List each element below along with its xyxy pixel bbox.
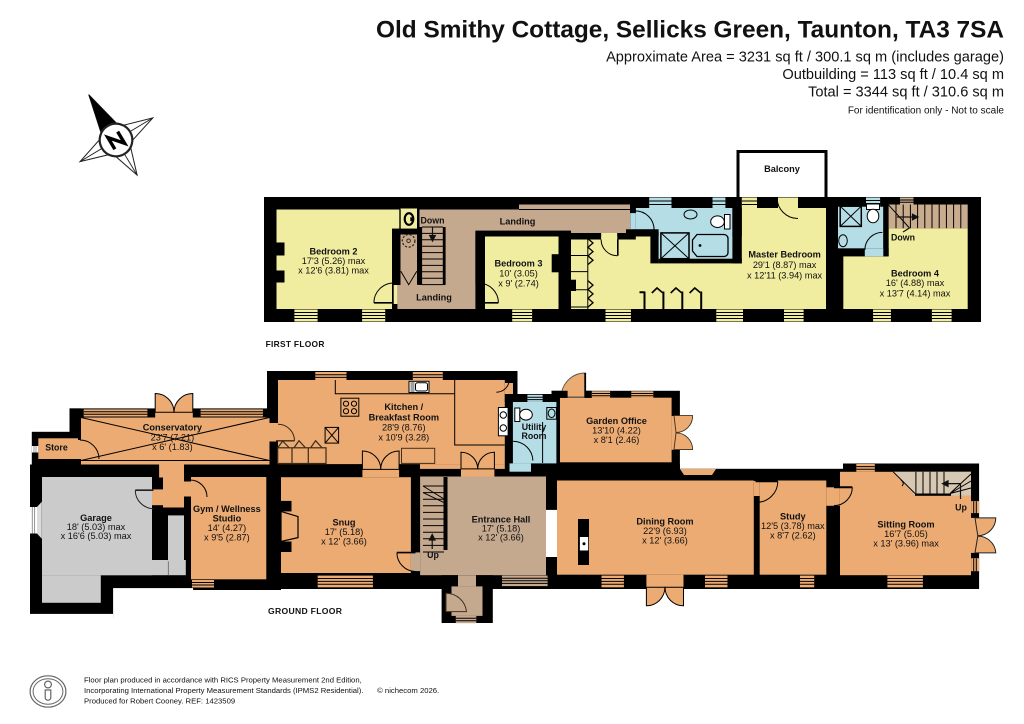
svg-text:Kitchen /: Kitchen / bbox=[384, 402, 423, 412]
svg-text:x 13'7 (4.14) max: x 13'7 (4.14) max bbox=[880, 288, 951, 298]
svg-text:Up: Up bbox=[955, 503, 967, 513]
svg-text:x 13' (3.96) max: x 13' (3.96) max bbox=[873, 539, 939, 549]
svg-text:Balcony: Balcony bbox=[764, 164, 801, 174]
svg-text:Outbuilding = 113 sq ft / 10.4: Outbuilding = 113 sq ft / 10.4 sq m bbox=[782, 67, 1004, 83]
svg-text:16' (4.88) max: 16' (4.88) max bbox=[886, 278, 945, 288]
svg-text:x 12'6 (3.81) max: x 12'6 (3.81) max bbox=[298, 266, 369, 276]
svg-text:Dining Room: Dining Room bbox=[636, 517, 693, 527]
svg-text:12'5 (3.78) max: 12'5 (3.78) max bbox=[761, 521, 825, 531]
svg-text:x 8'1 (2.46): x 8'1 (2.46) bbox=[594, 435, 640, 445]
svg-text:17' (5.18): 17' (5.18) bbox=[325, 527, 364, 537]
svg-text:x 12'11 (3.94) max: x 12'11 (3.94) max bbox=[747, 271, 823, 281]
svg-text:10' (3.05): 10' (3.05) bbox=[499, 268, 538, 278]
svg-text:Studio: Studio bbox=[213, 514, 242, 524]
svg-text:Total = 3344 sq ft / 310.6 sq: Total = 3344 sq ft / 310.6 sq m bbox=[808, 85, 1004, 101]
svg-text:Landing: Landing bbox=[416, 293, 452, 303]
svg-text:x 6' (1.83): x 6' (1.83) bbox=[152, 442, 193, 452]
svg-text:x 16'6 (5.03) max: x 16'6 (5.03) max bbox=[61, 531, 132, 541]
svg-text:x 8'7 (2.62): x 8'7 (2.62) bbox=[770, 531, 816, 541]
svg-text:FIRST FLOOR: FIRST FLOOR bbox=[266, 339, 325, 349]
svg-text:Snug: Snug bbox=[333, 517, 356, 527]
svg-text:Store: Store bbox=[45, 443, 68, 453]
svg-text:16'7 (5.05): 16'7 (5.05) bbox=[884, 529, 928, 539]
svg-text:Bedroom 4: Bedroom 4 bbox=[891, 268, 940, 278]
svg-text:x 9'5 (2.87): x 9'5 (2.87) bbox=[204, 533, 250, 543]
svg-text:17'3 (5.26) max: 17'3 (5.26) max bbox=[302, 256, 366, 266]
svg-text:Breakfast Room: Breakfast Room bbox=[369, 412, 439, 422]
svg-text:28'9 (8.76): 28'9 (8.76) bbox=[382, 423, 426, 433]
svg-text:x 9' (2.74): x 9' (2.74) bbox=[498, 278, 539, 288]
svg-text:x 12' (3.66): x 12' (3.66) bbox=[642, 536, 688, 546]
svg-text:x 10'9 (3.28): x 10'9 (3.28) bbox=[378, 433, 429, 443]
svg-text:Master Bedroom: Master Bedroom bbox=[748, 250, 821, 260]
svg-text:Sitting Room: Sitting Room bbox=[877, 520, 934, 530]
svg-text:x 12' (3.66): x 12' (3.66) bbox=[321, 537, 367, 547]
svg-text:Study: Study bbox=[780, 512, 806, 522]
svg-text:For identification only - Not: For identification only - Not to scale bbox=[848, 106, 1005, 117]
svg-text:Incorporating International Pr: Incorporating International Property Mea… bbox=[84, 686, 439, 695]
svg-text:Landing: Landing bbox=[500, 217, 536, 227]
svg-text:14' (4.27): 14' (4.27) bbox=[208, 523, 247, 533]
svg-text:22'9 (6.93): 22'9 (6.93) bbox=[643, 526, 687, 536]
svg-text:29'1 (8.87) max: 29'1 (8.87) max bbox=[753, 260, 817, 270]
svg-text:Garden Office: Garden Office bbox=[586, 416, 647, 426]
svg-text:Conservatory: Conservatory bbox=[143, 423, 203, 433]
svg-text:23'7 (7.21): 23'7 (7.21) bbox=[151, 433, 195, 443]
svg-text:Down: Down bbox=[891, 232, 915, 242]
svg-text:Floor plan produced in accorda: Floor plan produced in accordance with R… bbox=[84, 676, 362, 685]
svg-text:x 12' (3.66): x 12' (3.66) bbox=[478, 533, 524, 543]
svg-text:Down: Down bbox=[421, 216, 445, 226]
svg-text:Gym / Wellness: Gym / Wellness bbox=[193, 504, 261, 514]
svg-text:Approximate Area = 3231 sq ft: Approximate Area = 3231 sq ft / 300.1 sq… bbox=[606, 50, 1004, 66]
svg-text:Produced for Robert Cooney.: Produced for Robert Cooney. REF: 1423509 bbox=[84, 697, 235, 706]
svg-text:GROUND FLOOR: GROUND FLOOR bbox=[268, 606, 343, 616]
svg-text:Bedroom 3: Bedroom 3 bbox=[495, 258, 543, 268]
svg-text:Bedroom 2: Bedroom 2 bbox=[310, 246, 358, 256]
svg-text:Old Smithy Cottage, Sellicks G: Old Smithy Cottage, Sellicks Green, Taun… bbox=[376, 17, 1004, 44]
svg-text:Up: Up bbox=[427, 550, 439, 560]
